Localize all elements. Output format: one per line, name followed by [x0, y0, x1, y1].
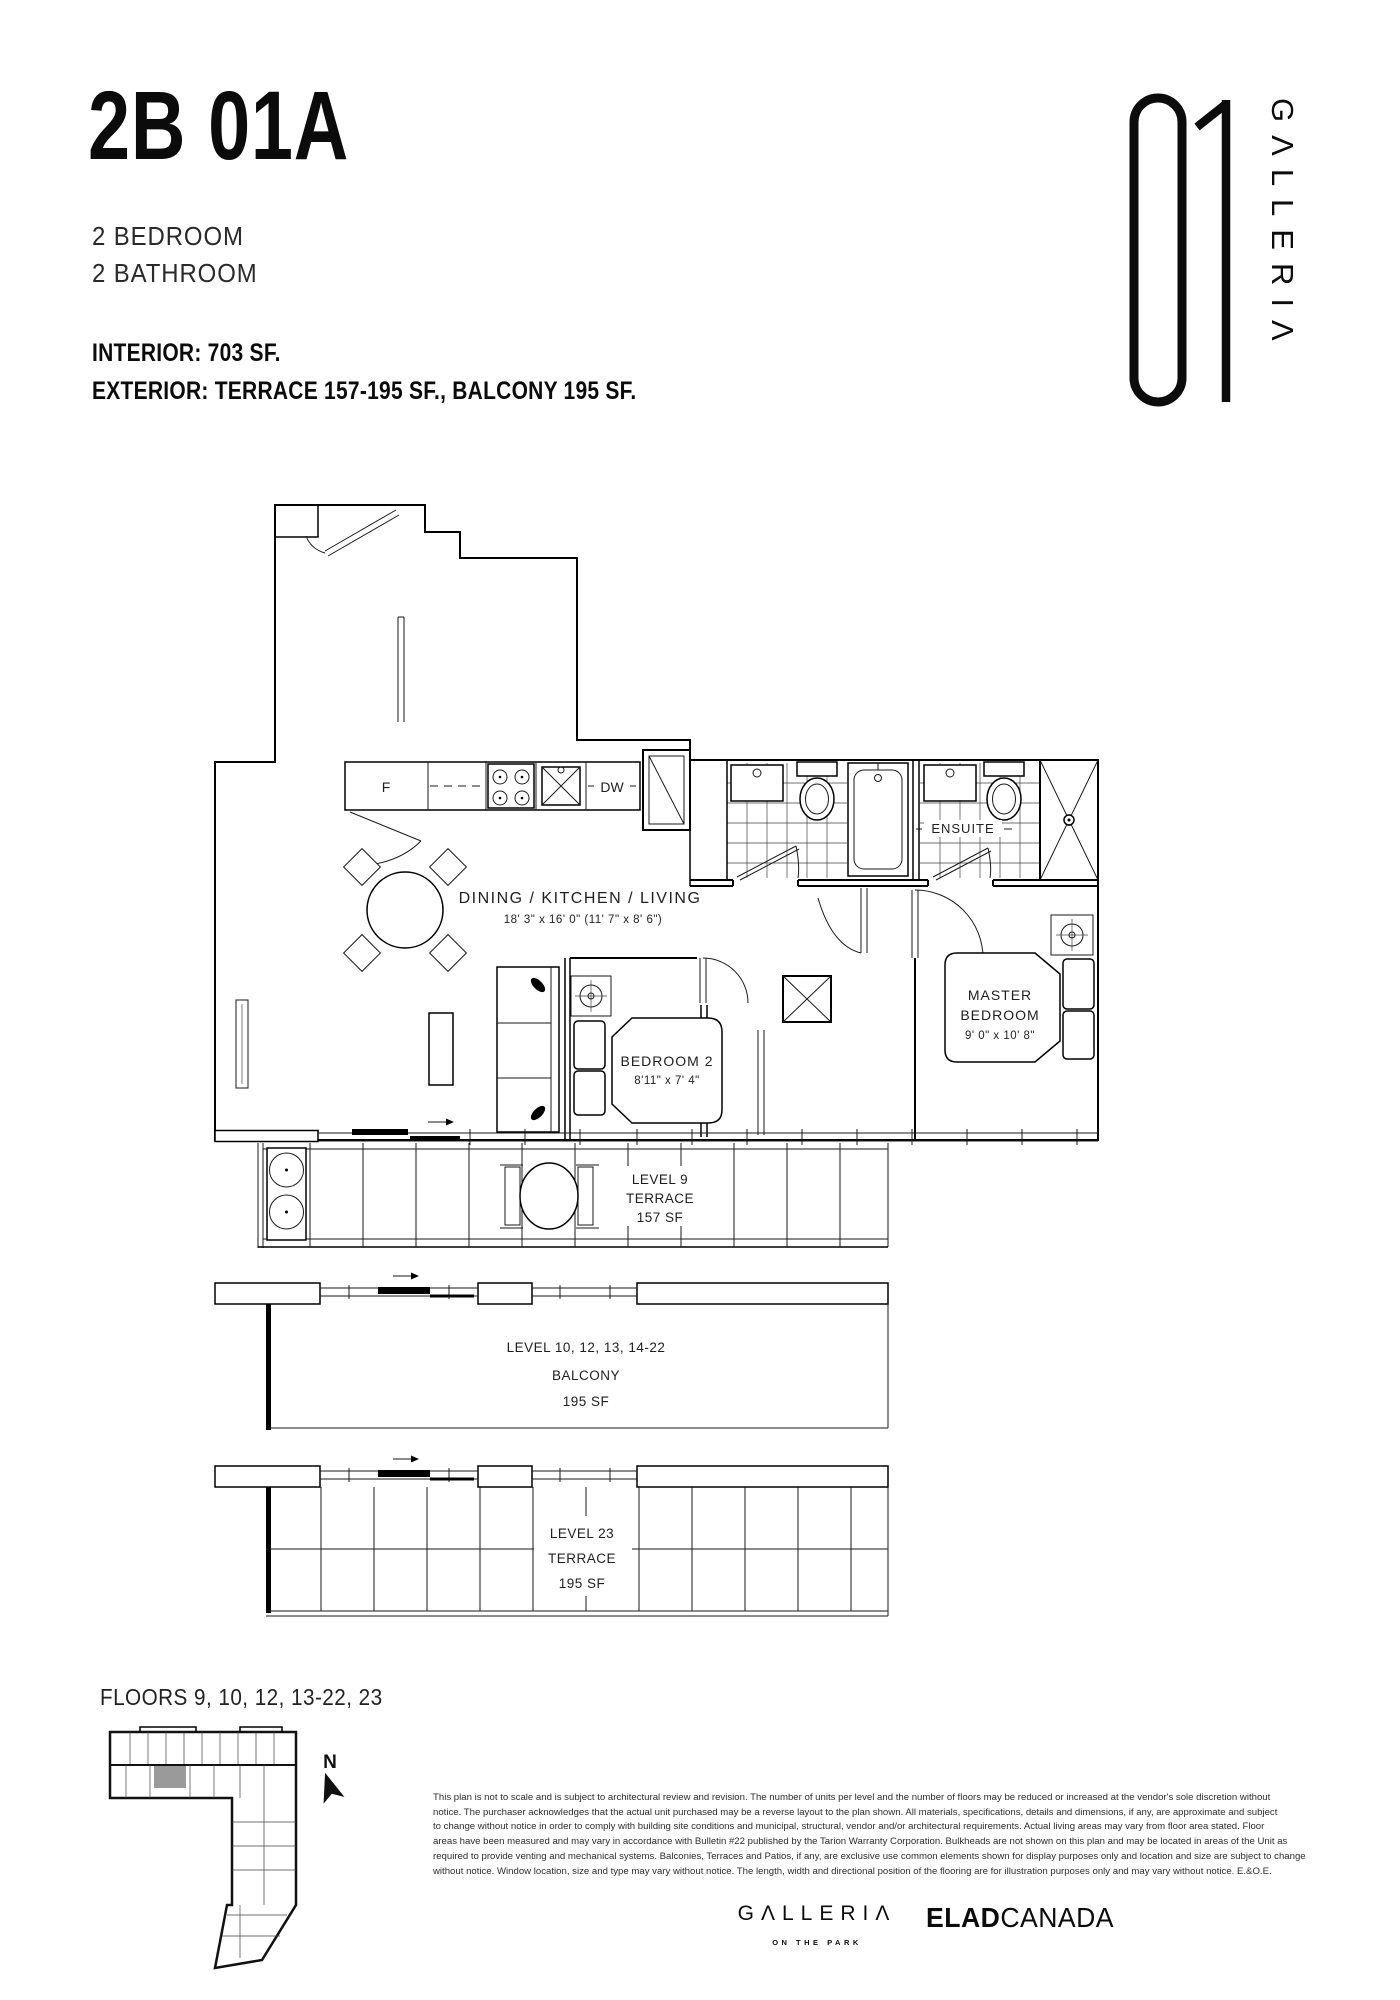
disclaimer: This plan is not to scale and is subject… — [433, 1791, 1338, 1879]
ensuite-sink-icon — [924, 765, 976, 801]
galleria-logo-subtitle: ON THE PARK — [733, 1938, 901, 1947]
north-label: N — [323, 1752, 337, 1773]
terrace-level9: LEVEL 9 TERRACE 157 SF — [258, 1143, 888, 1248]
balcony-levels: LEVEL 10, 12, 13, 14-22 BALCONY 195 SF — [215, 1273, 888, 1431]
living-label: DINING / KITCHEN / LIVING — [459, 890, 702, 907]
tv-console-icon — [236, 1000, 248, 1088]
hall-closet-door-swing — [818, 888, 867, 953]
dishwasher-label: DW — [600, 779, 624, 795]
ensuite-toilet-icon — [984, 762, 1024, 820]
terrace-level23: LEVEL 23 TERRACE 195 SF — [215, 1456, 888, 1617]
brand-01-logo: GΛLLERIΛ — [1134, 98, 1300, 402]
logo-one-glyph — [1197, 100, 1226, 402]
planter-icon — [267, 1148, 306, 1240]
logo-zero-glyph — [1134, 98, 1182, 402]
kitchen: F DW — [345, 750, 690, 866]
foyer-hall — [758, 888, 867, 1135]
fridge-label: F — [382, 779, 391, 795]
terrace9-label-3: 157 SF — [637, 1210, 684, 1225]
master-ceiling-light-icon — [1051, 915, 1093, 955]
entry-door-swing — [306, 510, 399, 556]
terrace23-label-3: 195 SF — [559, 1576, 606, 1591]
bedroom2-label: BEDROOM 2 — [620, 1053, 713, 1069]
pantry-cabinet — [643, 750, 690, 830]
patio-table-icon — [500, 1163, 599, 1229]
terrace23-label-2: TERRACE — [548, 1551, 616, 1566]
balcony-label-3: 195 SF — [563, 1394, 610, 1409]
disclaimer-line: without notice. Window location, size an… — [433, 1865, 1338, 1880]
bed-icon — [574, 1018, 722, 1123]
dining-table-icon — [344, 849, 467, 972]
shower-icon — [1040, 760, 1098, 880]
master-door-swing — [912, 890, 983, 958]
balcony-door-arrow-icon — [393, 1273, 419, 1280]
master-label-1: MASTER — [968, 987, 1032, 1003]
keyplan — [110, 1727, 296, 1968]
terrace9-label-1: LEVEL 9 — [632, 1172, 688, 1187]
bathroom-sink-icon — [731, 765, 783, 801]
terrace23-label-1: LEVEL 23 — [550, 1526, 614, 1541]
balcony-label-1: LEVEL 10, 12, 13, 14-22 — [507, 1340, 666, 1355]
living-dim: 18' 3" x 16' 0" (11' 7" x 8' 6") — [504, 914, 663, 926]
entry-closet-doors — [398, 617, 404, 722]
elad-canada-logo: ELADCANADA — [926, 1902, 1114, 1934]
master-label-2: BEDROOM — [960, 1007, 1039, 1023]
disclaimer-line: required to provide venting and mechanic… — [433, 1850, 1338, 1865]
coffee-table-icon — [429, 1013, 453, 1085]
ensuite-label: ENSUITE — [931, 821, 994, 836]
terrace23-door-arrow-icon — [393, 1456, 419, 1463]
bedroom2-dim: 8'11" x 7' 4" — [634, 1075, 700, 1087]
disclaimer-line: areas have been measured and may vary in… — [433, 1835, 1338, 1850]
north-arrow-icon: N — [315, 1752, 345, 1804]
toilet-icon — [797, 762, 837, 820]
logo-vertical-name: GΛLLERIΛ — [1265, 98, 1300, 354]
keyplan-unit-highlight — [154, 1766, 186, 1788]
elad-logo-regular: CANADA — [1000, 1902, 1114, 1933]
disclaimer-line: notice. The purchaser acknowledges that … — [433, 1806, 1338, 1821]
elad-logo-bold: ELAD — [926, 1902, 1000, 1933]
ensuite-door-swing — [933, 848, 991, 880]
disclaimer-line: This plan is not to scale and is subject… — [433, 1791, 1338, 1806]
bedroom2: BEDROOM 2 8'11" x 7' 4" — [565, 958, 748, 1140]
master-dim: 9' 0" x 10' 8" — [965, 1030, 1035, 1042]
slider-arrow-icon — [428, 1119, 454, 1126]
galleria-logo: GΛLLERIΛ — [733, 1902, 901, 1926]
terrace9-label-2: TERRACE — [626, 1191, 694, 1206]
balcony-label-2: BALCONY — [552, 1368, 620, 1383]
bathtub-icon — [848, 763, 908, 876]
disclaimer-line: to change without notice in order to com… — [433, 1820, 1338, 1835]
floorplan-page: { "header": { "unit_code": "2B 01A", "sp… — [0, 0, 1400, 2000]
master-bedroom: MASTER BEDROOM 9' 0" x 10' 8" — [912, 890, 1094, 1140]
main-bathroom — [690, 760, 908, 886]
hall-closet-doors — [758, 1030, 764, 1135]
washer-dryer-icon — [783, 976, 831, 1022]
bathroom-wall — [690, 880, 1098, 886]
sofa-icon — [497, 967, 559, 1132]
floors-label: FLOORS 9, 10, 12, 13-22, 23 — [100, 1684, 383, 1711]
ceiling-light-icon — [571, 976, 611, 1016]
